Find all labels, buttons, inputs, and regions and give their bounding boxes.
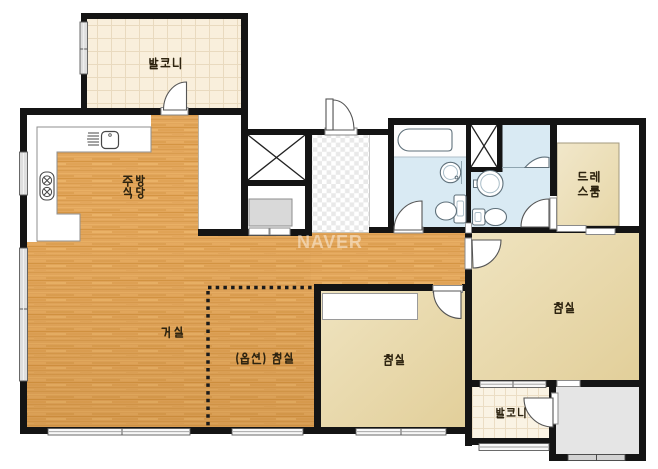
svg-text:NAVER: NAVER xyxy=(297,232,363,252)
